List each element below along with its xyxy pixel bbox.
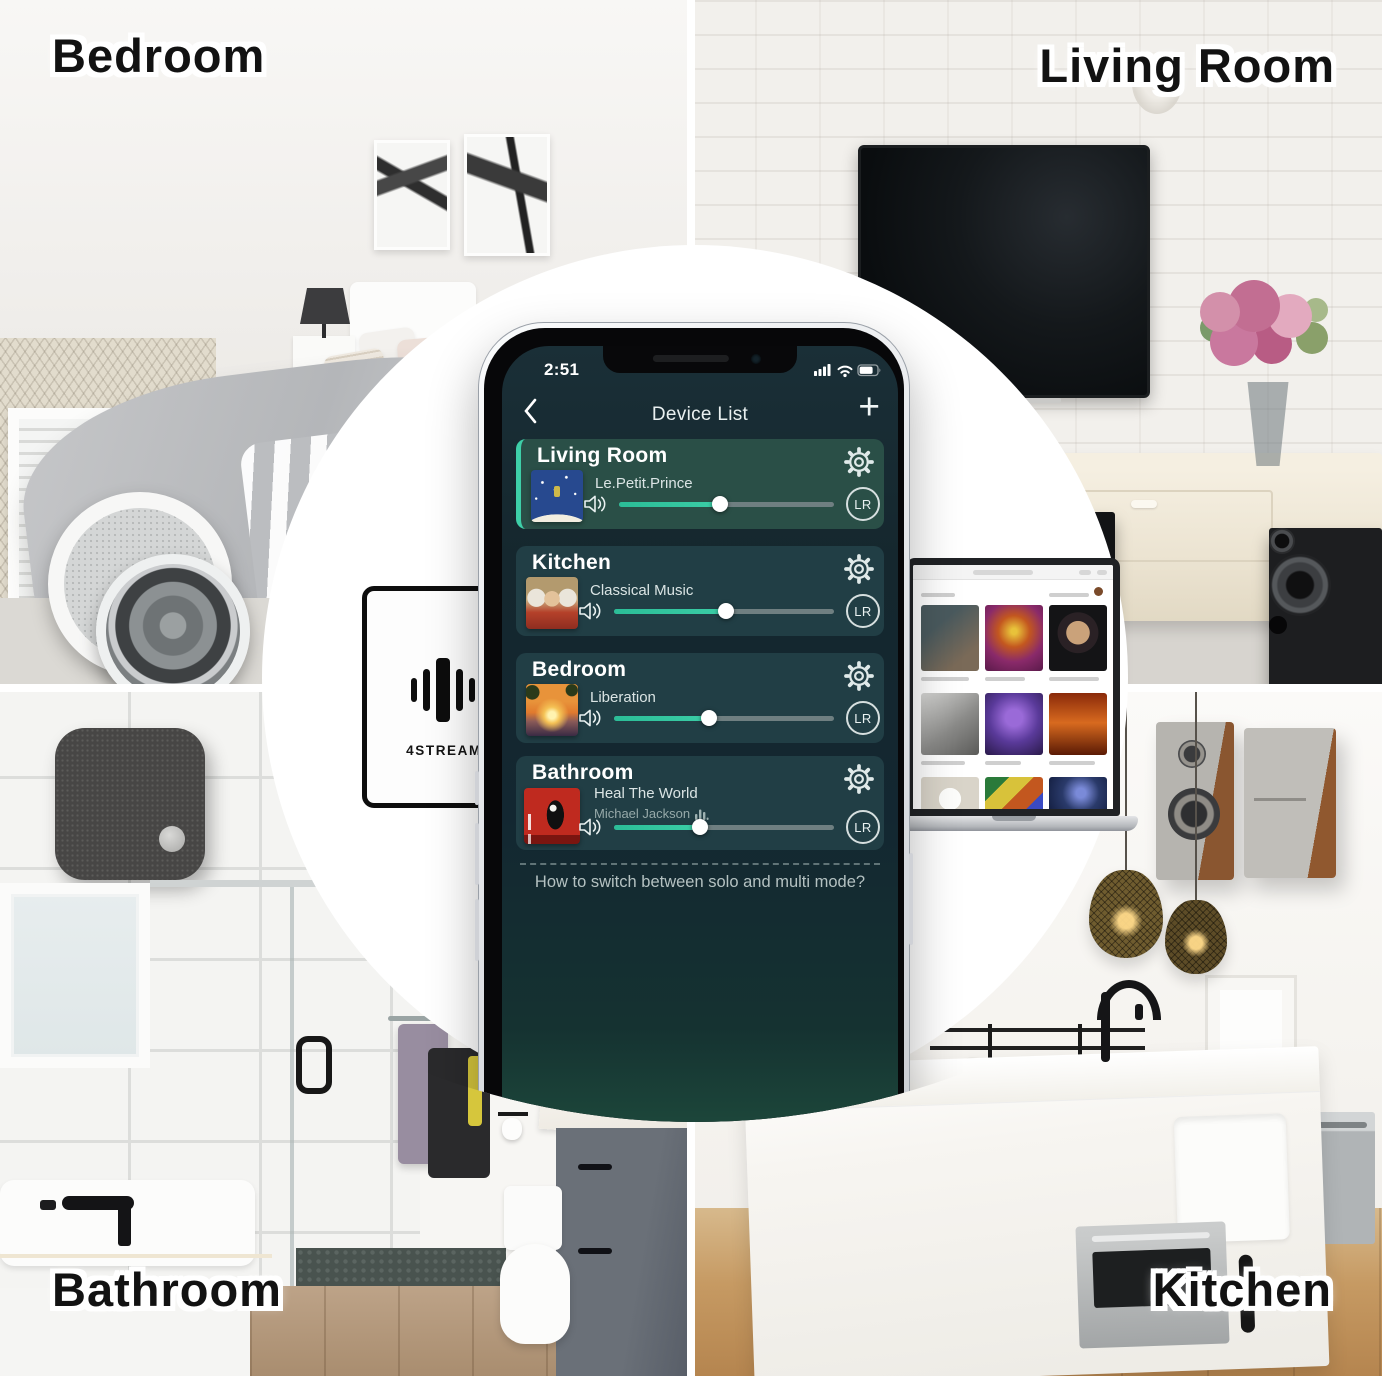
device-name: Living Room	[537, 444, 667, 468]
settings-gear-icon[interactable]	[844, 554, 874, 584]
settings-gear-icon[interactable]	[844, 661, 874, 691]
tub-faucet-handle	[40, 1200, 56, 1210]
phone-notch	[603, 346, 797, 373]
phone-screen: 2:51 Device List +	[502, 346, 898, 1158]
album-art	[524, 788, 580, 844]
wifi-dot	[843, 374, 846, 377]
living-room-label: Living Room	[1039, 38, 1335, 93]
status-icons	[814, 362, 882, 378]
slider-knob[interactable]	[692, 819, 708, 835]
device-row-living-room[interactable]: Living Room Le.Petit.Prince	[516, 439, 884, 529]
earpiece	[653, 355, 729, 362]
wifi-icon	[839, 367, 852, 373]
toilet-tank	[504, 1186, 562, 1250]
help-link[interactable]: How to switch between solo and multi mod…	[502, 873, 898, 892]
channel-mode-button[interactable]: LR	[846, 810, 880, 844]
status-time: 2:51	[544, 360, 579, 380]
album-art	[526, 577, 578, 629]
bathroom-window	[0, 883, 150, 1068]
volume-down-button	[475, 899, 479, 961]
dashed-divider	[520, 863, 880, 865]
device-row-bathroom[interactable]: Bathroom Heal The World Michael Jackson	[516, 756, 884, 850]
mute-switch	[475, 771, 479, 805]
slider-fill	[614, 609, 726, 614]
bathroom-label: Bathroom	[52, 1262, 282, 1317]
settings-gear-icon[interactable]	[844, 447, 874, 477]
volume-slider[interactable]	[614, 710, 834, 726]
cabinet-handle	[578, 1164, 612, 1170]
channel-mode-button[interactable]: LR	[846, 594, 880, 628]
shower-door-handle	[296, 1036, 332, 1094]
power-button	[909, 853, 913, 945]
speaker-icon	[578, 816, 604, 838]
toilet-paper-holder	[498, 1112, 528, 1116]
device-name: Kitchen	[532, 551, 611, 575]
kitchen-label: Kitchen	[1153, 1262, 1332, 1317]
phone-bezel: 2:51 Device List +	[484, 328, 904, 1164]
signal-icon	[814, 364, 831, 376]
slider-fill	[614, 716, 709, 721]
cabinet-handle	[578, 1248, 612, 1254]
speaker-icon	[583, 493, 609, 515]
volume-slider[interactable]	[614, 819, 834, 835]
volume-slider[interactable]	[619, 496, 834, 512]
slider-fill	[614, 825, 700, 830]
settings-gear-icon[interactable]	[844, 764, 874, 794]
vanity-cabinet	[556, 1128, 691, 1376]
device-name: Bedroom	[532, 658, 626, 682]
slider-fill	[619, 502, 720, 507]
album-art	[526, 684, 578, 736]
toilet	[500, 1244, 570, 1344]
album-art	[531, 470, 583, 522]
slider-knob[interactable]	[718, 603, 734, 619]
speaker-icon	[578, 707, 604, 729]
tub-faucet-spout	[118, 1206, 131, 1246]
battery-icon	[858, 365, 880, 376]
device-row-bedroom[interactable]: Bedroom Liberation	[516, 653, 884, 743]
page-title: Device List	[502, 404, 898, 426]
channel-mode-button[interactable]: LR	[846, 701, 880, 735]
channel-mode-button[interactable]: LR	[846, 487, 880, 521]
volume-up-button	[475, 823, 479, 885]
speaker-icon	[578, 600, 604, 622]
slider-knob[interactable]	[712, 496, 728, 512]
add-device-button[interactable]: +	[858, 388, 880, 425]
device-name: Bathroom	[532, 761, 634, 785]
bedroom-label: Bedroom	[52, 28, 265, 83]
now-playing: Heal The World	[594, 785, 698, 802]
slider-knob[interactable]	[701, 710, 717, 726]
front-camera	[751, 354, 761, 364]
device-row-kitchen[interactable]: Kitchen Classical Music	[516, 546, 884, 636]
smartphone: 2:51 Device List +	[478, 322, 910, 1170]
volume-slider[interactable]	[614, 603, 834, 619]
